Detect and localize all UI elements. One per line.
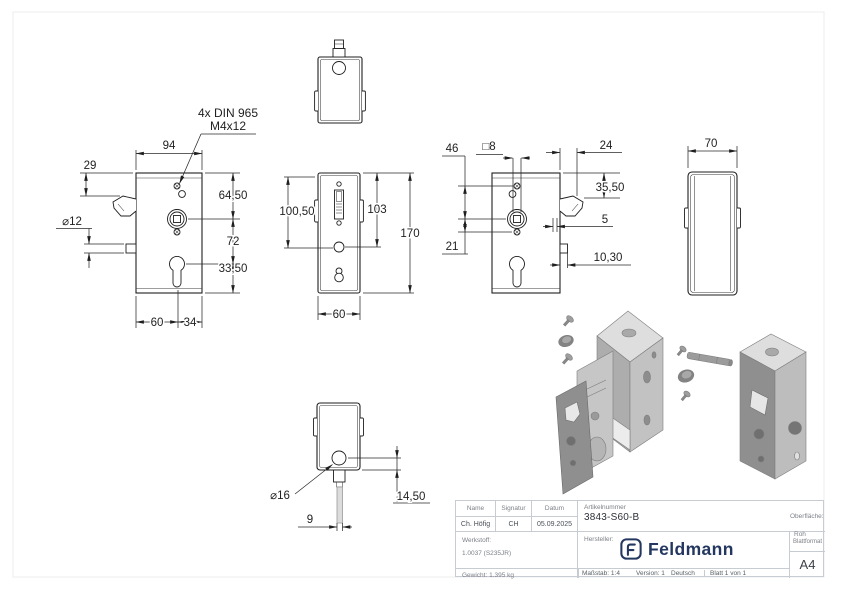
manufacturer-cell: Hersteller: Feldmann bbox=[578, 532, 789, 569]
side-view-2 bbox=[685, 172, 741, 295]
col-header-signatur: Signatur bbox=[496, 501, 532, 517]
latch-hook bbox=[113, 196, 136, 216]
material-label: Werkstoff: bbox=[462, 537, 577, 544]
dim-front-top-to-spindle: 64,50 bbox=[219, 190, 248, 202]
weight-cell: Gewicht: 1.395 kg bbox=[456, 569, 578, 578]
rosette bbox=[677, 368, 696, 384]
dim-front-offset: 29 bbox=[84, 160, 97, 172]
dim-side-depth: 60 bbox=[333, 309, 346, 321]
dim-front-spindle-to-cyl: 72 bbox=[227, 236, 240, 248]
screw-note-line1: 4x DIN 965 bbox=[198, 106, 258, 120]
feldmann-logo-icon bbox=[620, 538, 642, 560]
article-number-label: Artikelnummer bbox=[584, 504, 626, 511]
dim-bottom-pin-offset: 14,50 bbox=[397, 491, 426, 503]
material-value: 1.0037 (S235JR) bbox=[462, 550, 577, 557]
assembled-lock-front bbox=[740, 352, 775, 479]
dim-back-hole-spacing: 46 bbox=[446, 143, 459, 155]
dim-side-inner-height: 100,50 bbox=[279, 206, 314, 218]
dim-back-spindle-to-hole: 21 bbox=[446, 241, 459, 253]
material-cell: Werkstoff: 1.0037 (S235JR) bbox=[456, 532, 578, 569]
title-block: Name Signatur Datum Ch. Höfig CH 05.09.2… bbox=[455, 500, 824, 577]
surface-label: Oberfläche: bbox=[790, 513, 824, 520]
dim-front-bolt-dia: ⌀12 bbox=[62, 216, 82, 228]
version-value: Version: 1 bbox=[636, 570, 665, 577]
drawing-date: 05.09.2025 bbox=[532, 517, 578, 532]
screw bbox=[560, 352, 573, 366]
dim-bottom-pin-dia: ⌀16 bbox=[270, 490, 290, 502]
dim-back-tab-depth: 10,30 bbox=[594, 252, 623, 264]
bottom-view-dimensions bbox=[295, 446, 430, 531]
sheet-format-value: A4 bbox=[790, 552, 825, 577]
article-number: 3843-S60-B bbox=[584, 512, 639, 523]
dim-bottom-pin-width: 9 bbox=[307, 514, 313, 526]
sheet-format-cell: Blattformat A4 bbox=[789, 532, 825, 578]
front-view bbox=[113, 173, 202, 293]
spindle-rod bbox=[337, 487, 343, 523]
article-cell: Artikelnummer 3843-S60-B Oberfläche: Roh bbox=[578, 501, 825, 532]
dim-front-bottom-right: 34 bbox=[184, 317, 197, 329]
sheet-count: Blatt 1 von 1 bbox=[704, 570, 746, 577]
dim-side2-width: 70 bbox=[705, 138, 718, 150]
drawing-sheet: 4x DIN 965 M4x12 94 29 ⌀12 64,50 72 33,5… bbox=[0, 0, 842, 595]
dim-front-cyl-to-bottom: 33,50 bbox=[219, 263, 248, 275]
latch-slot bbox=[335, 190, 344, 219]
spindle-pin bbox=[687, 352, 733, 366]
side-view bbox=[315, 173, 364, 293]
author-name: Ch. Höfig bbox=[456, 517, 496, 532]
faceplate bbox=[556, 381, 593, 494]
bolt-tab bbox=[126, 244, 136, 253]
dim-front-bottom-left: 60 bbox=[151, 317, 164, 329]
manufacturer-label: Hersteller: bbox=[584, 536, 614, 543]
top-view bbox=[315, 40, 366, 123]
screw bbox=[561, 314, 574, 328]
feldmann-logo: Feldmann bbox=[620, 538, 734, 560]
scale-row: Maßstab: 1:4 Version: 1 Deutsch Blatt 1 … bbox=[578, 569, 789, 578]
dim-back-square: □8 bbox=[482, 141, 495, 153]
sheet-format-label: Blattformat bbox=[790, 532, 825, 552]
col-header-name: Name bbox=[456, 501, 496, 517]
dim-front-width: 94 bbox=[163, 140, 176, 152]
feldmann-wordmark: Feldmann bbox=[648, 539, 734, 560]
bottom-view bbox=[314, 403, 364, 523]
exploded-view bbox=[556, 311, 806, 494]
dim-back-latch-offset: 5 bbox=[602, 214, 608, 226]
scale-value: Maßstab: 1:4 bbox=[582, 570, 620, 577]
weight-value: Gewicht: 1.395 kg bbox=[462, 572, 514, 579]
latch-hook-back bbox=[560, 196, 583, 216]
dim-back-top-to-latch: 35,50 bbox=[596, 182, 625, 194]
pin-hole bbox=[332, 451, 346, 465]
language-value: Deutsch bbox=[671, 570, 695, 577]
screw-note-line2: M4x12 bbox=[210, 119, 246, 133]
bolt-tab-back bbox=[560, 244, 568, 253]
dim-side-total-height: 170 bbox=[400, 228, 419, 240]
screw bbox=[679, 390, 691, 402]
dim-back-latch-depth: 24 bbox=[600, 140, 613, 152]
author-signature: CH bbox=[496, 517, 532, 532]
col-header-datum: Datum bbox=[532, 501, 578, 517]
rosette bbox=[557, 333, 575, 348]
latch-pin-bottom bbox=[334, 470, 346, 482]
back-view bbox=[492, 173, 583, 293]
dim-side-mid-height: 103 bbox=[367, 204, 386, 216]
screw bbox=[675, 345, 687, 357]
